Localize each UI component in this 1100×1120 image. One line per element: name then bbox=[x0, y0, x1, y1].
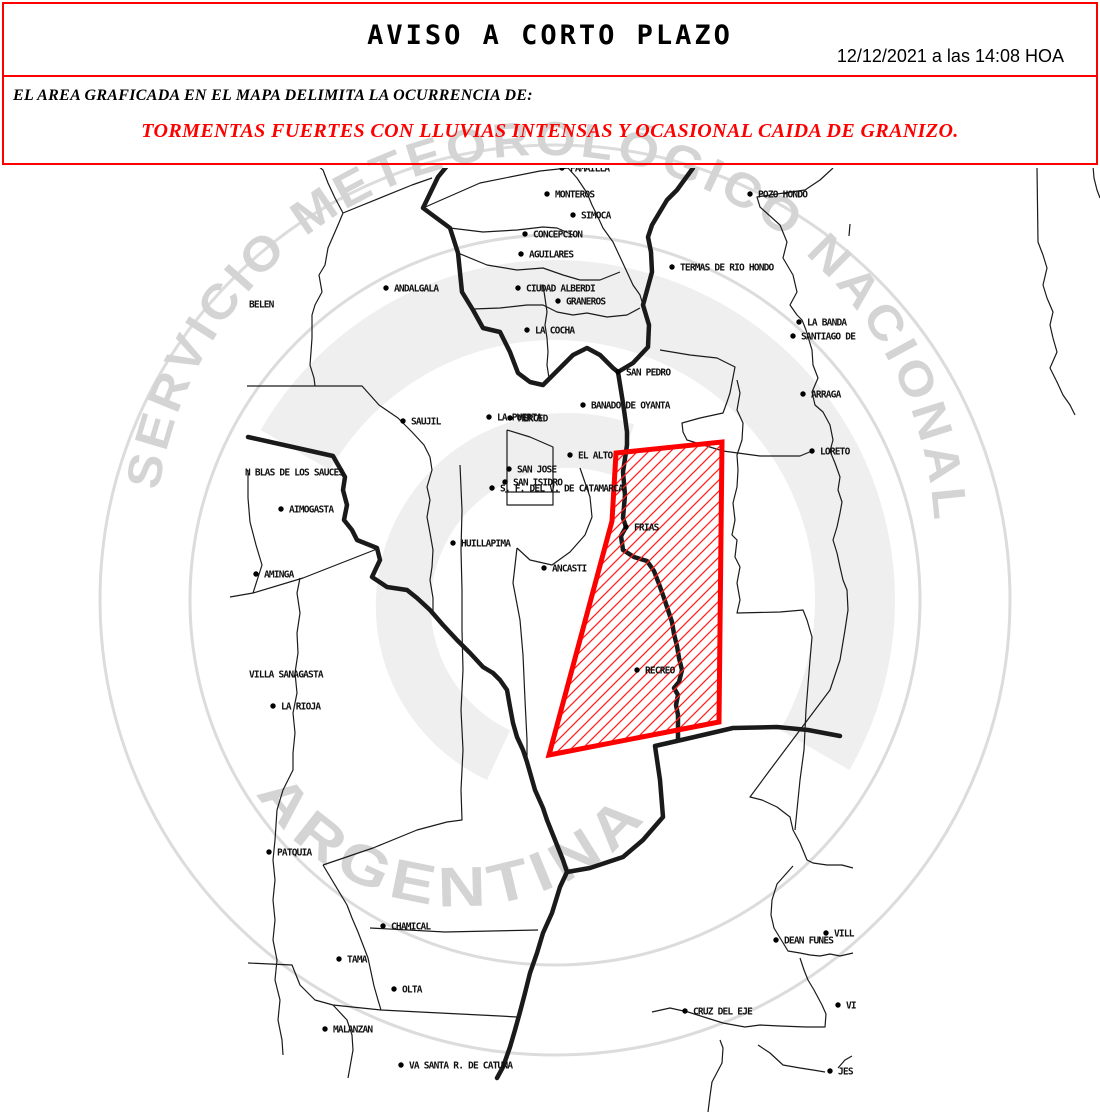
town-dot bbox=[253, 571, 258, 576]
province-boundary bbox=[849, 224, 850, 236]
town-dot bbox=[506, 466, 511, 471]
town-dot bbox=[835, 1002, 840, 1007]
town-dot bbox=[790, 333, 795, 338]
town-dot bbox=[524, 327, 529, 332]
town-dot bbox=[322, 1026, 327, 1031]
map-label: JES bbox=[838, 1067, 854, 1078]
map-label: ANDALGALA bbox=[394, 284, 439, 295]
town-dot bbox=[823, 930, 828, 935]
province-boundary bbox=[1037, 168, 1075, 415]
map-label: TERMAS DE RIO HONDO bbox=[680, 263, 775, 274]
town-dot bbox=[800, 391, 805, 396]
town-dot bbox=[278, 506, 283, 511]
town-dot bbox=[383, 285, 388, 290]
map-label: SAUJIL bbox=[411, 417, 442, 428]
map-label: BELEN bbox=[249, 300, 275, 311]
map-label: CIUDAD ALBERDI bbox=[526, 284, 595, 295]
map-label: PATQUIA bbox=[277, 848, 313, 859]
map-label: MERCED bbox=[518, 414, 549, 425]
map-label: HUILLAPIMA bbox=[461, 539, 511, 550]
province-boundary bbox=[758, 1045, 825, 1072]
map-label: LA RIOJA bbox=[281, 702, 321, 713]
map-label: N BLAS DE LOS SAUCES bbox=[245, 468, 344, 479]
town-dot bbox=[522, 231, 527, 236]
map-label: ANCASTI bbox=[552, 564, 587, 575]
town-dot bbox=[809, 448, 814, 453]
town-dot bbox=[623, 524, 628, 529]
map-label: OLTA bbox=[402, 985, 423, 996]
map-label: GRANEROS bbox=[566, 297, 606, 308]
map-label: SIMOCA bbox=[581, 211, 612, 222]
map-label: CRUZ DEL EJE bbox=[693, 1007, 753, 1018]
map-label: LORETO bbox=[820, 447, 851, 458]
town-dot bbox=[336, 956, 341, 961]
map-label: MALANZAN bbox=[333, 1025, 373, 1036]
map-label: AIMOGASTA bbox=[289, 505, 334, 516]
town-dot bbox=[796, 319, 801, 324]
aviso-page: SERVICIO METEOROLÓGICO NACIONALARGENTINA… bbox=[0, 0, 1100, 1120]
map-label: TAMA bbox=[347, 955, 368, 966]
map-label: AGUILARES bbox=[529, 250, 574, 261]
province-boundary bbox=[230, 549, 377, 597]
map-label: VA SANTA R. DE CATUNA bbox=[409, 1061, 513, 1072]
town-dot bbox=[518, 251, 523, 256]
town-dot bbox=[270, 703, 275, 708]
map-label: LA COCHA bbox=[535, 326, 575, 337]
town-dot bbox=[391, 986, 396, 991]
alert-description-main: TORMENTAS FUERTES CON LLUVIAS INTENSAS Y… bbox=[0, 120, 1100, 143]
town-dot bbox=[507, 415, 512, 420]
town-dot bbox=[615, 369, 620, 374]
map-label: VILLA SANAGASTA bbox=[249, 670, 324, 681]
town-dot bbox=[827, 1068, 832, 1073]
map-label: RECREO bbox=[645, 666, 676, 677]
alert-description-intro: EL AREA GRAFICADA EN EL MAPA DELIMITA LA… bbox=[13, 87, 533, 105]
map-label: DEAN FUNES bbox=[784, 936, 834, 947]
town-dot bbox=[544, 191, 549, 196]
issue-datetime: 12/12/2021 a las 14:08 HOA bbox=[837, 46, 1064, 67]
map-label: EL ALTO bbox=[578, 451, 614, 462]
town-dot bbox=[489, 485, 494, 490]
town-dot bbox=[515, 285, 520, 290]
map-label: CONCEPCION bbox=[533, 230, 583, 241]
town-dot bbox=[555, 298, 560, 303]
map-label: S. F. DEL V. DE CATAMARCA bbox=[500, 484, 624, 495]
map-label: SANTIAGO DE bbox=[801, 332, 856, 343]
map-label: SAN PEDRO bbox=[626, 368, 671, 379]
province-boundary bbox=[708, 1040, 723, 1112]
watermark-text-bottom: ARGENTINA bbox=[246, 762, 659, 918]
town-dot bbox=[486, 414, 491, 419]
map-label: ARRAGA bbox=[811, 390, 842, 401]
province-boundary bbox=[1093, 166, 1100, 198]
map-label: VILL bbox=[834, 929, 855, 940]
map-label: POZO HONDO bbox=[758, 190, 808, 201]
map-label: AMINGA bbox=[264, 570, 295, 581]
province-boundary bbox=[333, 1005, 353, 1078]
town-dot bbox=[567, 452, 572, 457]
town-dot bbox=[682, 1008, 687, 1013]
town-dot bbox=[450, 540, 455, 545]
town-dot bbox=[580, 402, 585, 407]
town-dot bbox=[541, 565, 546, 570]
map-label: VI bbox=[846, 1001, 856, 1012]
town-dot bbox=[773, 937, 778, 942]
town-dot bbox=[400, 418, 405, 423]
map-label: BANADO DE OYANTA bbox=[591, 401, 671, 412]
alert-header: AVISO A CORTO PLAZO 12/12/2021 a las 14:… bbox=[0, 0, 1100, 170]
header-divider bbox=[2, 75, 1098, 77]
town-dot bbox=[266, 849, 271, 854]
map-label: MONTEROS bbox=[555, 190, 595, 201]
town-dot bbox=[398, 1062, 403, 1067]
map-label: CHAMICAL bbox=[391, 922, 431, 933]
town-dot bbox=[669, 264, 674, 269]
town-dot bbox=[747, 191, 752, 196]
map-label: SAN JOSE bbox=[517, 465, 557, 476]
town-dot bbox=[380, 923, 385, 928]
map-label: LA BANDA bbox=[807, 318, 847, 329]
map-label: FRIAS bbox=[634, 523, 660, 534]
town-dot bbox=[570, 212, 575, 217]
town-dot bbox=[634, 667, 639, 672]
